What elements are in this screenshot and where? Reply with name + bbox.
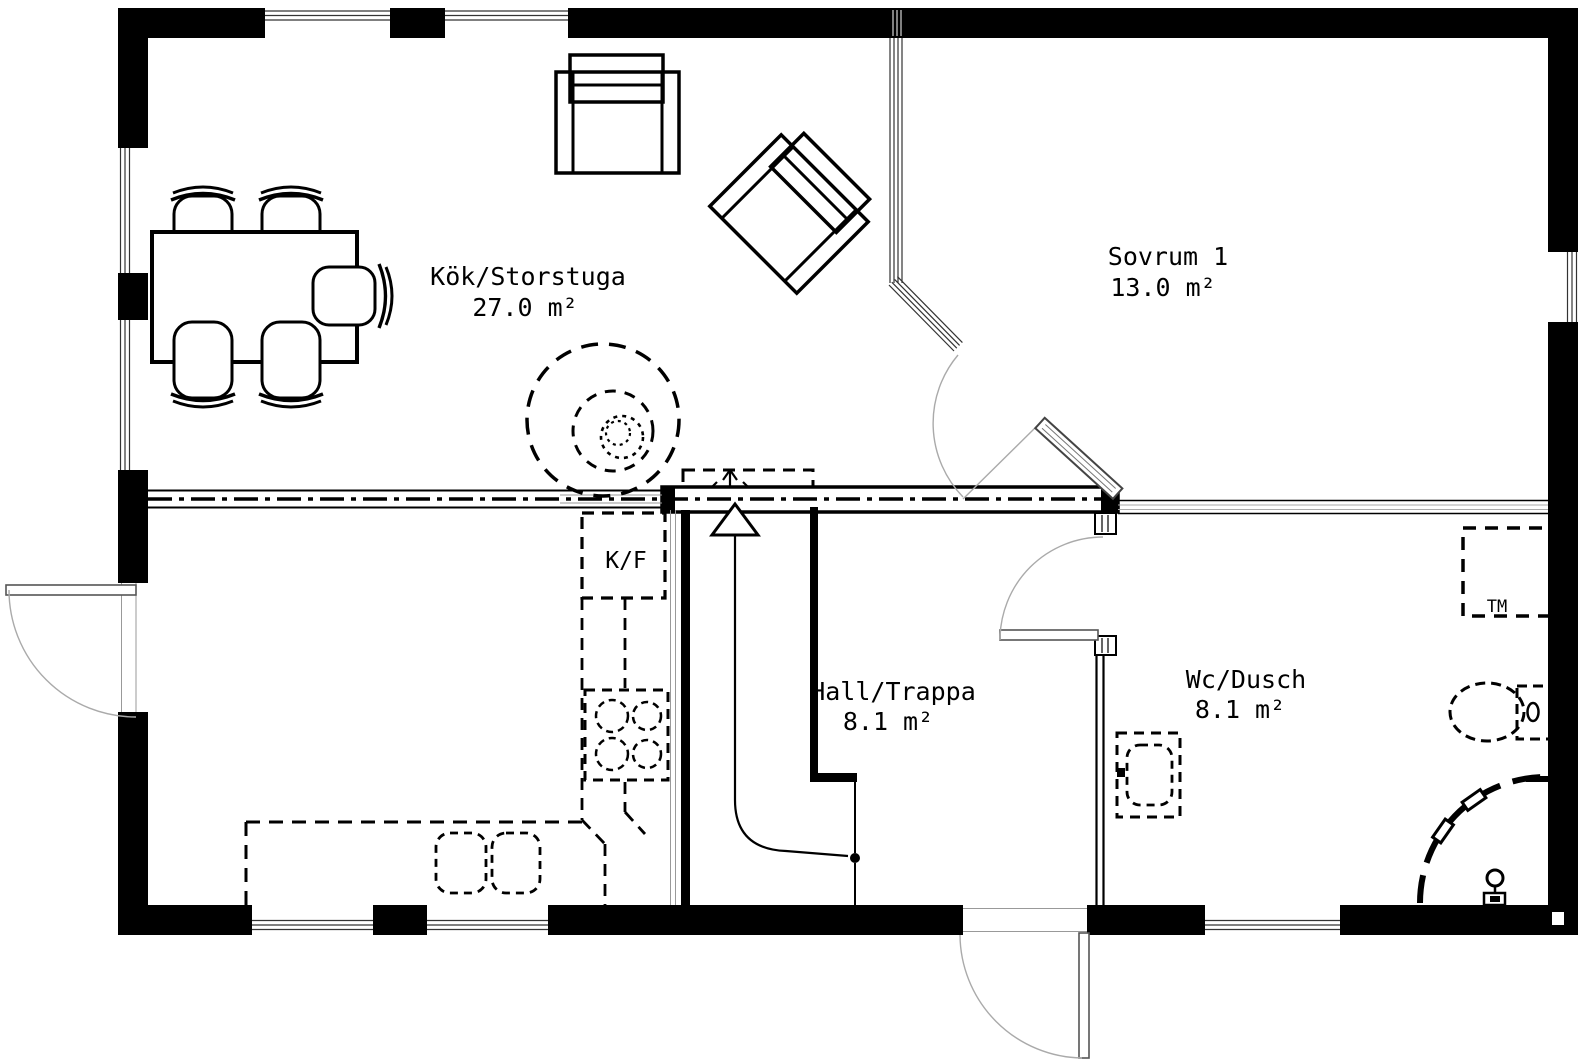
windows xyxy=(121,10,1577,930)
window-left-1 xyxy=(121,148,130,273)
room-label-kok: Kök/Storstuga xyxy=(430,262,626,291)
window-right xyxy=(1568,252,1577,322)
chair xyxy=(313,264,392,328)
toilet xyxy=(1450,683,1550,741)
burner xyxy=(633,740,661,768)
burner xyxy=(596,700,628,732)
chair xyxy=(171,322,235,407)
washing-machine-label: TM xyxy=(1487,597,1507,617)
door-swing-arc xyxy=(1000,537,1103,640)
window-bottom-3 xyxy=(1205,921,1340,930)
chimney-dashed-circle xyxy=(527,344,679,496)
shower xyxy=(1420,777,1548,905)
room-label-wc: Wc/Dusch xyxy=(1186,665,1306,694)
armchair-rotated xyxy=(710,123,880,293)
door-jamb xyxy=(1095,513,1116,534)
shower-hinge xyxy=(1433,819,1454,843)
window-top-1 xyxy=(265,11,390,20)
hall-wc-wall xyxy=(1095,513,1116,905)
door-swing-arc xyxy=(960,935,1082,1058)
sovrum-door xyxy=(933,355,1122,499)
room-label-hall: Hall/Trappa xyxy=(810,677,976,706)
entry-door-left xyxy=(6,583,136,717)
window-bottom-1 xyxy=(252,921,373,930)
door-swing-arc xyxy=(933,355,963,497)
stair-west-wall xyxy=(681,510,690,905)
burner xyxy=(596,738,628,770)
tap xyxy=(1117,768,1125,777)
sovrum-wc-partition xyxy=(1118,501,1548,514)
floor-plan: Kök/Storstuga 27.0 m² Sovrum 1 13.0 m² H… xyxy=(0,0,1589,1064)
shower-fitting xyxy=(1487,870,1503,886)
sovrum-partition-wall xyxy=(889,38,962,351)
burner xyxy=(633,702,661,730)
exterior-walls xyxy=(118,8,1578,935)
armchair xyxy=(556,55,679,173)
corner-notch xyxy=(1552,912,1564,925)
chair xyxy=(259,322,323,407)
room-area-kok: 27.0 m² xyxy=(472,293,577,322)
fridge-freezer-label: K/F xyxy=(605,548,647,574)
kitchen-counter-dashed xyxy=(246,598,645,905)
room-label-sovrum: Sovrum 1 xyxy=(1108,242,1228,271)
stair-walkline-start-dot xyxy=(850,853,860,863)
cooktop-dashed xyxy=(585,690,668,780)
stair-east-wall xyxy=(810,507,818,780)
room-area-wc: 8.1 m² xyxy=(1195,695,1285,724)
shower-hinge xyxy=(1462,790,1486,811)
door-leaf xyxy=(6,585,136,595)
window-bottom-2 xyxy=(427,921,548,930)
window-left-2 xyxy=(121,320,130,470)
washbasin xyxy=(1117,733,1180,817)
wc-door xyxy=(1000,537,1103,640)
door-swing-arc xyxy=(9,590,136,717)
entry-door-bottom xyxy=(960,909,1089,1059)
door-leaf xyxy=(1079,933,1089,1058)
kitchen-sink-basin xyxy=(492,833,540,893)
floor-plan-canvas: Kök/Storstuga 27.0 m² Sovrum 1 13.0 m² H… xyxy=(0,0,1589,1064)
door-leaf xyxy=(1000,630,1098,640)
room-area-hall: 8.1 m² xyxy=(843,707,933,736)
kitchen-sink-basin xyxy=(436,833,486,893)
window-top-2 xyxy=(445,11,568,20)
dining-set xyxy=(152,187,392,407)
room-area-sovrum: 13.0 m² xyxy=(1110,273,1215,302)
